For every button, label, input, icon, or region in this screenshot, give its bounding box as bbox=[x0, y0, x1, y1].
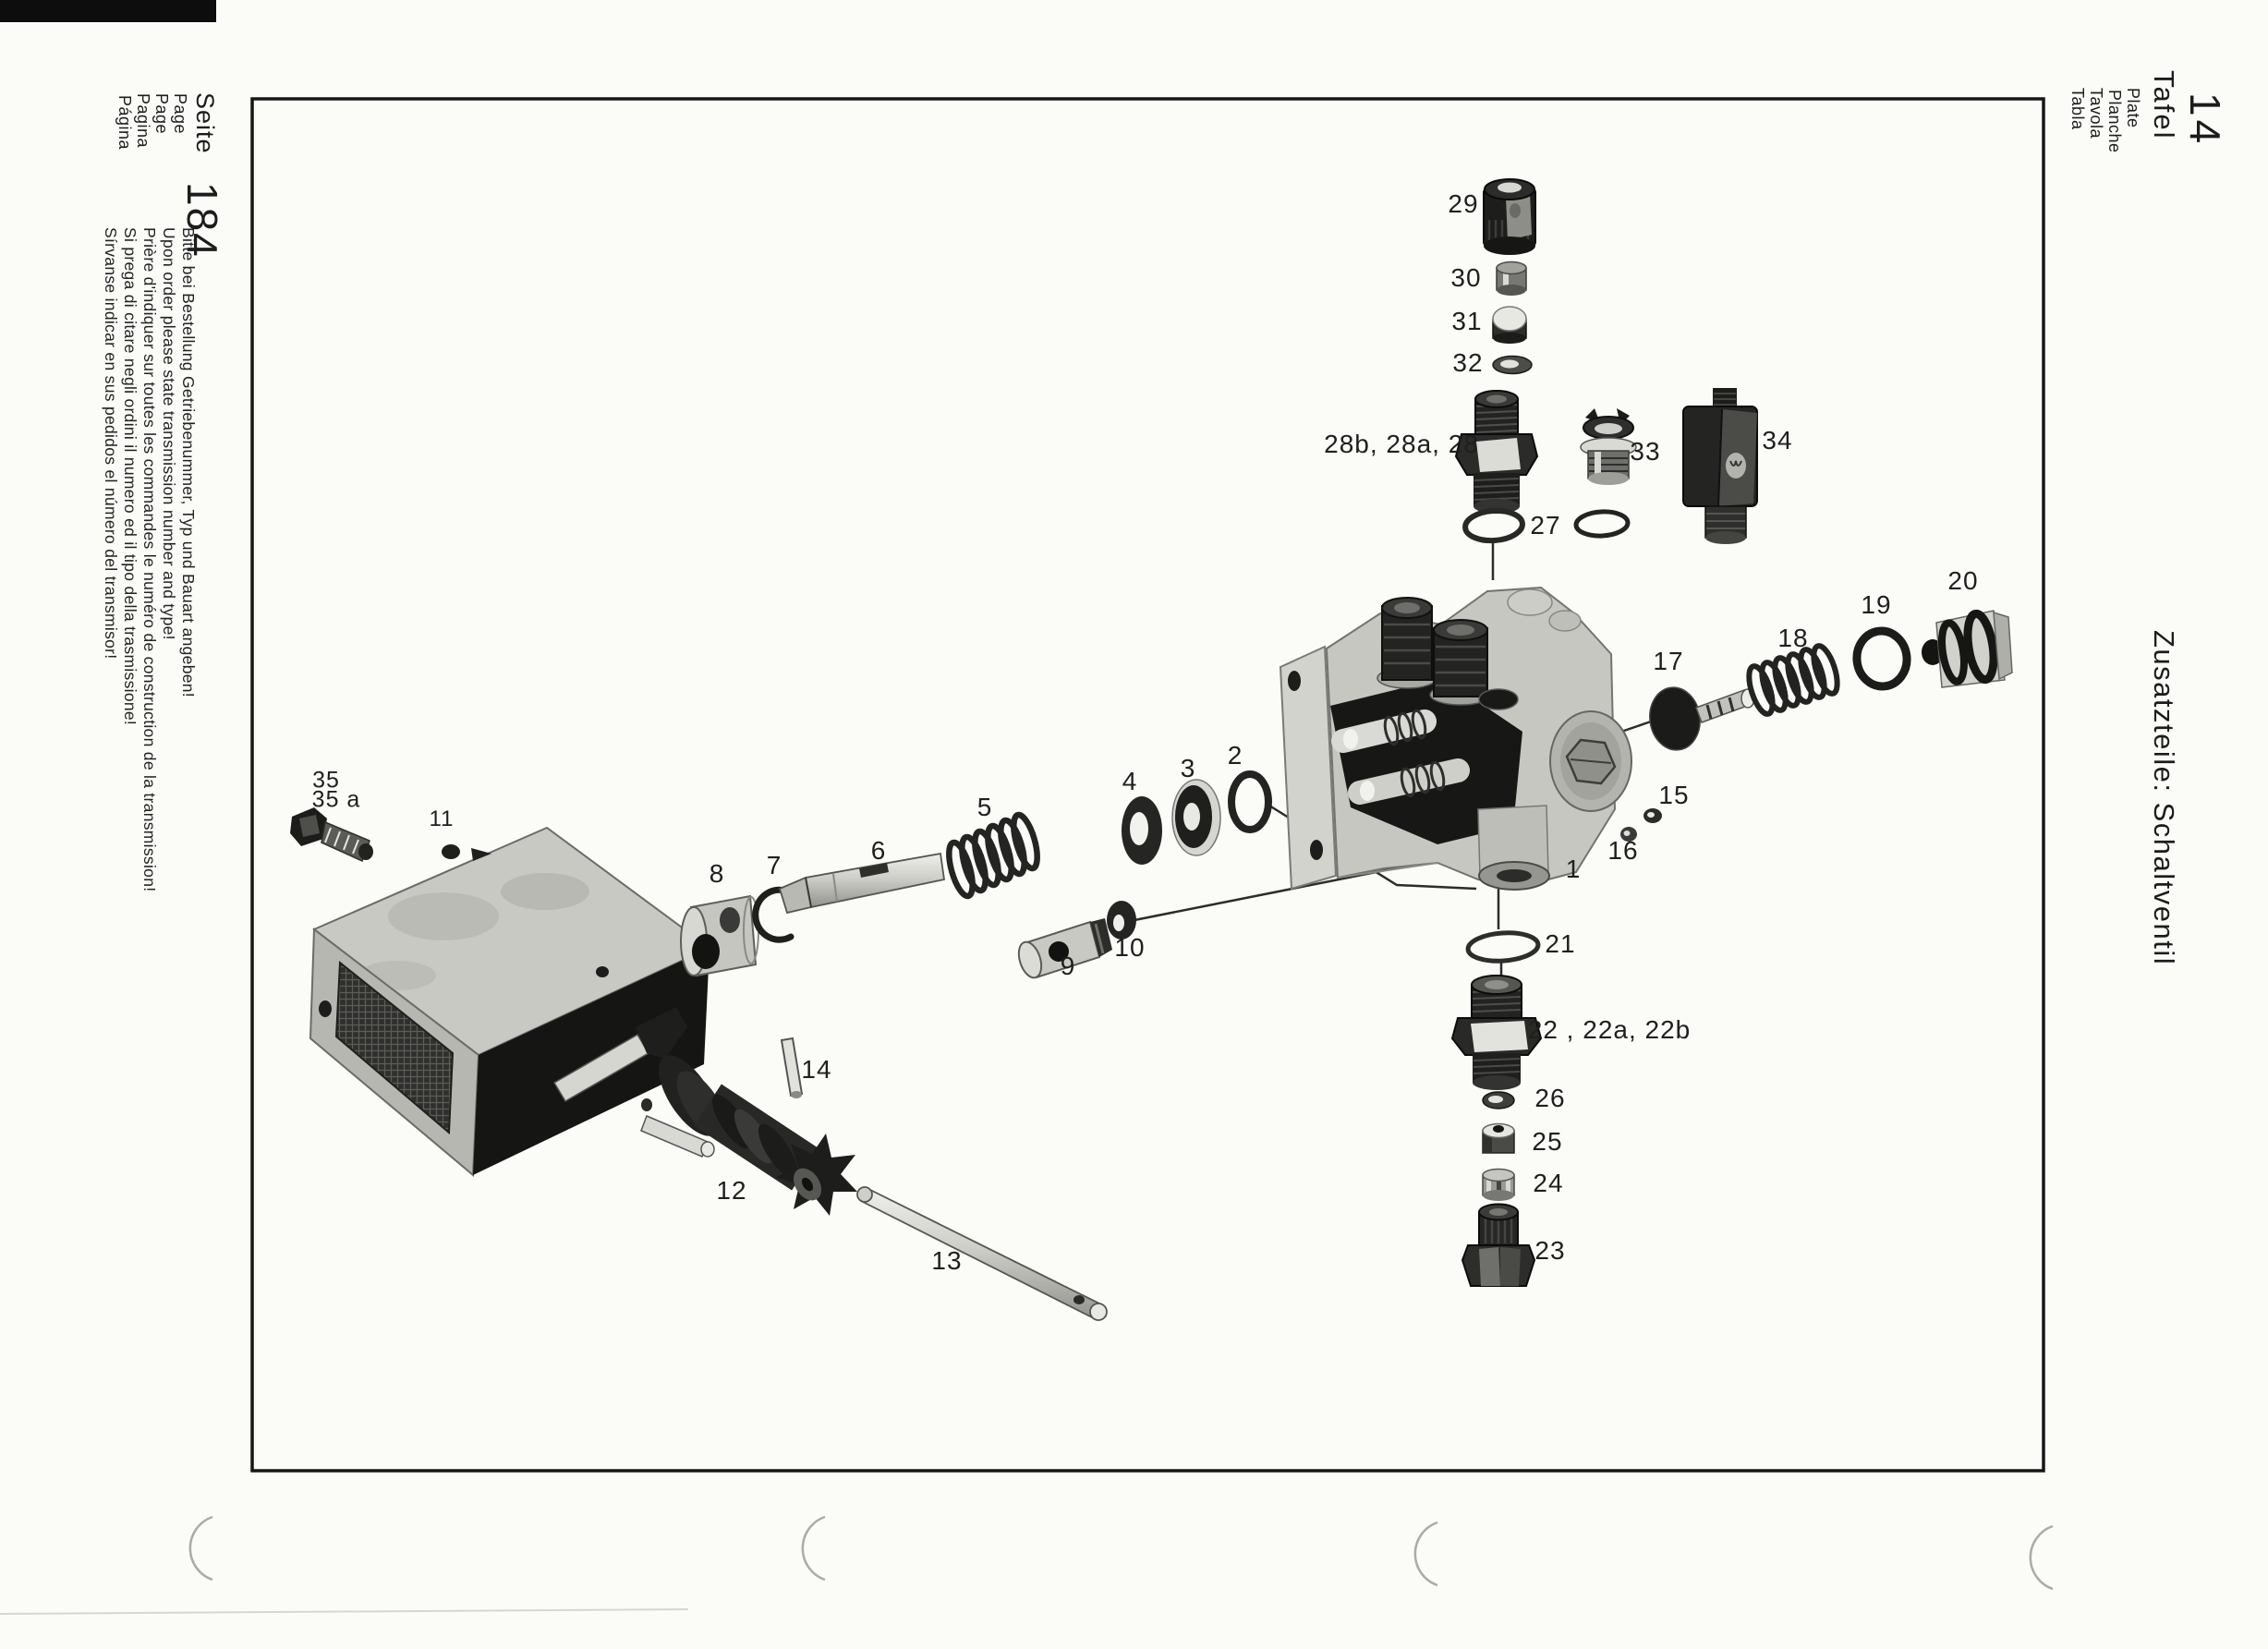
spring-5 bbox=[944, 812, 1042, 898]
part-callout-34: 34 bbox=[1762, 426, 1792, 455]
cap-29 bbox=[1484, 179, 1535, 255]
o-ring-21 bbox=[1467, 930, 1539, 963]
cap-nut-23 bbox=[1462, 1205, 1534, 1287]
o-ring-19 bbox=[1854, 628, 1910, 688]
diagram-frame bbox=[252, 99, 2044, 1471]
o-ring-33 bbox=[1575, 511, 1628, 538]
part-callout-21: 21 bbox=[1545, 929, 1575, 959]
screw-35 bbox=[290, 807, 373, 861]
plate-trans-it: Tavola bbox=[2088, 88, 2104, 139]
poppet-17 bbox=[1646, 685, 1754, 754]
part-callout-2: 2 bbox=[1228, 741, 1243, 770]
part-callout-18: 18 bbox=[1777, 624, 1808, 653]
part-callout-28b28a28: 28b, 28a, 28 bbox=[1324, 430, 1479, 459]
part-callout-7: 7 bbox=[767, 851, 782, 880]
order-note-fr: Prière d'indiquer sur toutes les command… bbox=[139, 227, 159, 891]
part-callout-20: 20 bbox=[1947, 566, 1978, 596]
spring-18 bbox=[1744, 643, 1842, 717]
scan-artifact-line bbox=[0, 1609, 688, 1614]
part-callout-12: 12 bbox=[716, 1176, 746, 1206]
part-callout-32: 32 bbox=[1452, 348, 1483, 378]
part-callout-13: 13 bbox=[931, 1246, 962, 1276]
part-callout-17: 17 bbox=[1653, 647, 1683, 676]
page-trans-fr: Page bbox=[153, 93, 170, 134]
part-callout-8: 8 bbox=[710, 859, 725, 889]
part-callout-33: 33 bbox=[1630, 437, 1660, 467]
rod-13 bbox=[857, 1187, 1107, 1320]
plate-label: Tafel bbox=[2147, 70, 2180, 139]
exploded-diagram bbox=[0, 0, 2268, 1649]
washer-32 bbox=[1493, 357, 1532, 374]
part-callout-30: 30 bbox=[1450, 263, 1481, 293]
o-ring-27 bbox=[1464, 509, 1523, 542]
part-callout-11: 11 bbox=[430, 806, 455, 832]
plate-number: 14 bbox=[2180, 92, 2230, 147]
order-note-es: Sírvanse indicar en sus pedidos el númer… bbox=[101, 227, 120, 659]
part-callout-4: 4 bbox=[1122, 767, 1138, 796]
part-callout-3: 3 bbox=[1181, 754, 1196, 783]
catalog-page: Seite Page Page Pagina Página 184 Tafel … bbox=[0, 0, 2268, 1649]
part-callout-9: 9 bbox=[1061, 952, 1076, 981]
seal-ring-4 bbox=[1122, 796, 1162, 865]
plate-trans-es: Tabla bbox=[2069, 88, 2086, 130]
part-callout-5: 5 bbox=[977, 793, 993, 822]
part-callout-24: 24 bbox=[1533, 1169, 1563, 1198]
o-ring-2 bbox=[1231, 774, 1268, 830]
washer-26 bbox=[1483, 1092, 1514, 1109]
page-label: Seite bbox=[190, 92, 219, 154]
bushing-25 bbox=[1483, 1124, 1514, 1154]
part-callout-19: 19 bbox=[1861, 590, 1891, 620]
plate-trans-fr: Planche bbox=[2106, 90, 2123, 153]
order-note-it: Si prega di citare negli ordini il numer… bbox=[120, 227, 139, 725]
part-callout-14: 14 bbox=[801, 1055, 831, 1085]
page-trans-es: Página bbox=[116, 95, 133, 150]
ring-24 bbox=[1483, 1170, 1514, 1202]
washer-15 bbox=[1643, 808, 1662, 823]
order-note-de: Bitte bei Bestellung Getriebenummer, Typ… bbox=[178, 227, 198, 697]
sleeve-8 bbox=[681, 896, 758, 976]
section-title: Zusatzteile: Schaltventil bbox=[2147, 630, 2180, 965]
plug-20 bbox=[1922, 611, 2012, 687]
part-callout-29: 29 bbox=[1448, 189, 1478, 219]
part-callout-15: 15 bbox=[1658, 781, 1689, 810]
part-callout-31: 31 bbox=[1451, 307, 1482, 336]
part-callout-23: 23 bbox=[1534, 1236, 1565, 1266]
fitting-34 bbox=[1683, 388, 1757, 544]
part-callout-1: 1 bbox=[1566, 855, 1582, 884]
piston-6 bbox=[780, 854, 944, 913]
order-note-en: Upon order please state transmission num… bbox=[159, 227, 178, 640]
solenoid-box bbox=[310, 828, 714, 1175]
page-trans-it: Pagina bbox=[135, 93, 152, 148]
pin-14 bbox=[782, 1038, 802, 1098]
part-callout-35a: 35 a bbox=[312, 787, 361, 814]
plug-33 bbox=[1581, 408, 1636, 485]
part-callout-27: 27 bbox=[1530, 511, 1560, 540]
part-callout-16: 16 bbox=[1607, 836, 1638, 866]
plate-trans-en: Plate bbox=[2125, 88, 2141, 128]
part-callout-26: 26 bbox=[1534, 1084, 1565, 1113]
part-callout-2222a22b: 22 , 22a, 22b bbox=[1528, 1015, 1691, 1045]
punch-hole-arcs bbox=[190, 1517, 2053, 1589]
part-callout-25: 25 bbox=[1532, 1127, 1562, 1157]
part-callout-6: 6 bbox=[871, 836, 887, 866]
seal-ring-3 bbox=[1172, 780, 1220, 855]
valve-body-1 bbox=[1280, 588, 1631, 890]
page-trans-en: Page bbox=[172, 93, 188, 134]
cap-31 bbox=[1493, 307, 1526, 344]
bushing-30 bbox=[1497, 262, 1526, 297]
part-callout-10: 10 bbox=[1114, 933, 1145, 963]
